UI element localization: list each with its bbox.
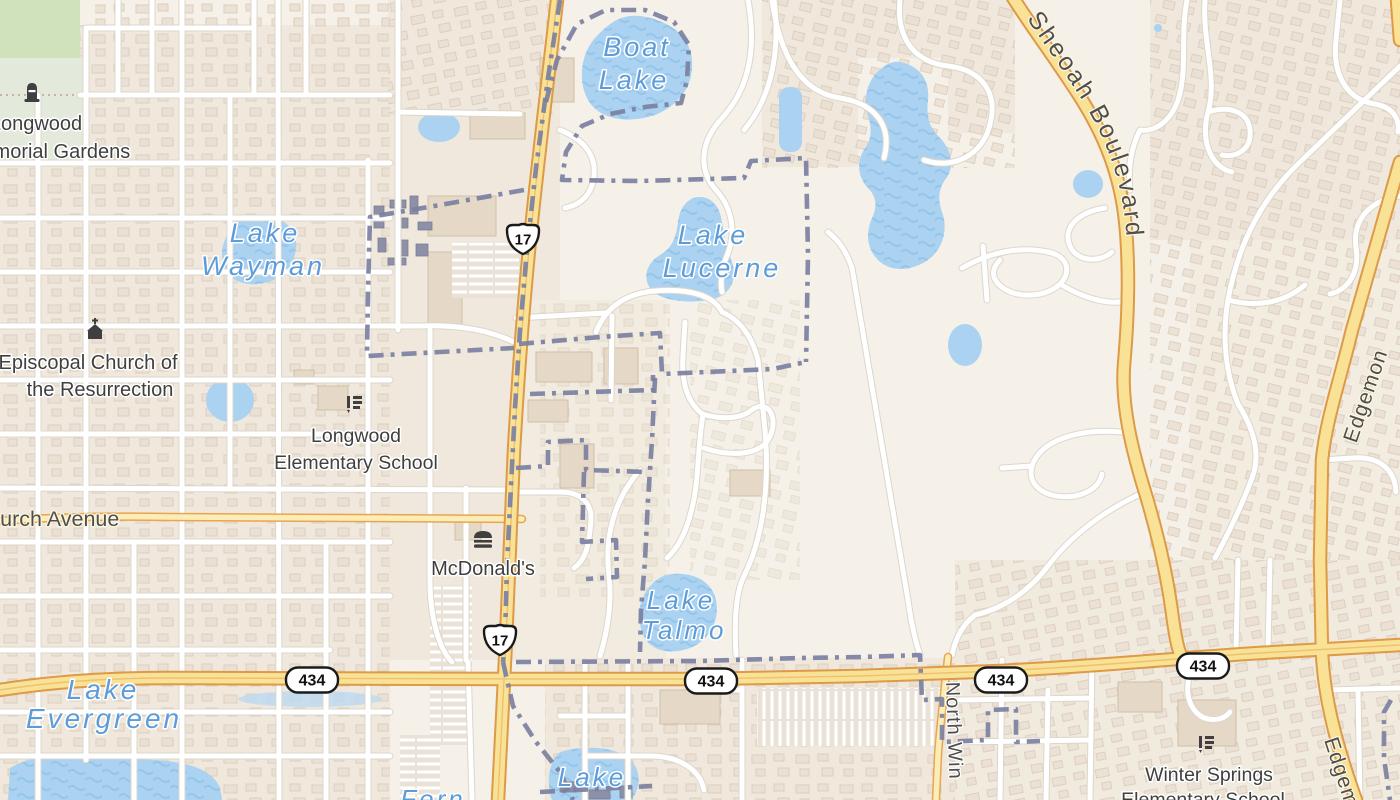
lake-label-boat-1: Boat [603,32,671,62]
route-shield-sr434: 434 [1177,654,1229,679]
street-label-north: North Win [941,681,966,780]
cemetery-area [0,0,85,160]
pond [1073,170,1103,198]
shield-label: 434 [988,673,1015,690]
shield-label: 17 [492,633,509,650]
lake-label-wayman-2: Wayman [201,251,325,281]
shield-label: 17 [515,232,532,249]
poi-label-memorial-1: Longwood [0,113,82,135]
poi-label-episcopal-2: the Resurrection [27,379,174,401]
poi-label-longwood-school-2: Elementary School [274,452,438,474]
lake-label-boat-2: Lake [599,65,670,95]
lake-label-evergreen-1: Lake [67,674,140,705]
lake-label-wayman-1: Lake [230,218,301,248]
poi-label-ws-school-2: Elementary School [1121,789,1285,800]
lake-label-south: Lake [558,762,626,792]
poi-label-longwood-school-1: Longwood [311,425,401,447]
pond [948,324,982,366]
map-svg[interactable]: 17 17 434 434 434 434 Boat Lake Lake Way… [0,0,1400,800]
pool [1154,24,1162,32]
shield-label: 434 [698,674,725,691]
shield-label: 434 [1190,659,1217,676]
poi-label-episcopal-1: Episcopal Church of [0,352,178,374]
map-canvas[interactable]: 17 17 434 434 434 434 Boat Lake Lake Way… [0,0,1400,800]
lake-label-talmo-1: Lake [647,585,715,615]
route-shield-sr434: 434 [685,669,737,694]
shield-label: 434 [299,673,326,690]
poi-label-ws-school-1: Winter Springs [1145,764,1273,786]
lake-label-lucerne-1: Lake [678,220,749,250]
street-label-church-avenue: Church Avenue [0,507,119,531]
lake-label-evergreen-2: Evergreen [26,703,182,734]
pond [418,112,460,142]
lake-label-talmo-2: Talmo [642,615,727,645]
lake-label-fern: Fern [400,784,465,800]
route-shield-sr434: 434 [975,668,1027,693]
lake-label-lucerne-2: Lucerne [663,253,782,283]
pond [779,87,802,152]
poi-label-memorial-2: Memorial Gardens [0,141,130,163]
poi-label-mcdonalds: McDonald's [431,558,535,580]
route-shield-sr434: 434 [286,668,338,693]
